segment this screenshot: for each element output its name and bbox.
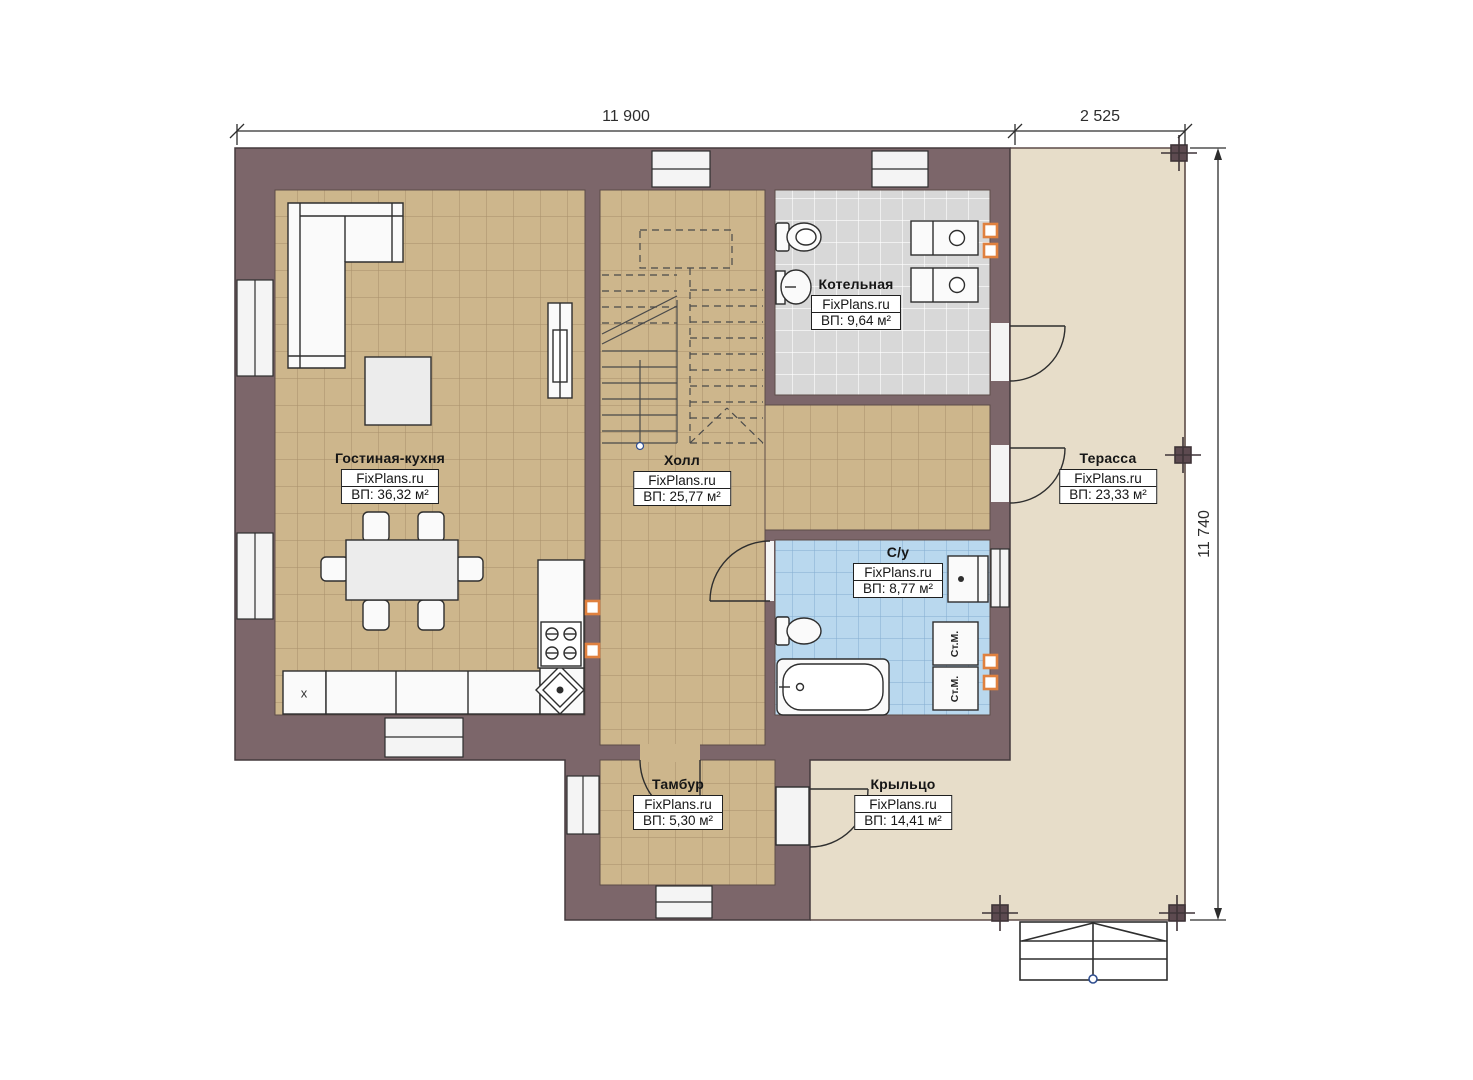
washing-machine-2 [933,667,978,710]
outlet-icon [586,644,599,657]
bathtub [777,659,889,715]
sink-boiler [776,270,811,304]
toilet-bathroom [776,617,821,645]
dining-chair [455,557,483,581]
vestibule-floor [600,760,775,885]
window-left-upper [237,280,273,376]
dining-chair [321,557,349,581]
window-top-boiler [872,151,928,187]
floor-plan: 11 900 2 525 11 740 Гостиная-кухня FixPl… [0,0,1473,1080]
exterior-steps [1020,922,1167,983]
outlet-icon [984,655,997,668]
window-vestibule-south [656,886,712,918]
dining-table [346,540,458,600]
toilet-boiler [776,223,821,251]
outlet-icon [586,601,599,614]
hall-floor [600,190,765,745]
window-right-bathroom [991,549,1009,607]
outlet-icon [984,244,997,257]
window-bottom-living [385,718,463,757]
tv-stand [548,303,572,398]
stove [541,622,581,666]
boiler-unit-2 [911,268,978,302]
dimension-right [1190,148,1226,920]
floor-plan-drawing [0,0,1473,1080]
kitchen-counter [326,671,540,714]
dining-chair [418,600,444,630]
window-vestibule-west [567,776,599,834]
fridge [283,671,326,714]
coffee-table [365,357,431,425]
window-top-hall [652,151,710,187]
bathroom-sink [948,556,988,602]
dimension-top [230,124,1192,145]
washing-machine-1 [933,622,978,665]
dining-chair [363,512,389,542]
hall-vestibule-opening [640,744,700,762]
boiler-unit-1 [911,221,978,255]
dining-chair [418,512,444,542]
hall-floor-east [765,405,990,530]
dining-chair [363,600,389,630]
window-left-lower [237,533,273,619]
outlet-icon [984,676,997,689]
outlet-icon [984,224,997,237]
